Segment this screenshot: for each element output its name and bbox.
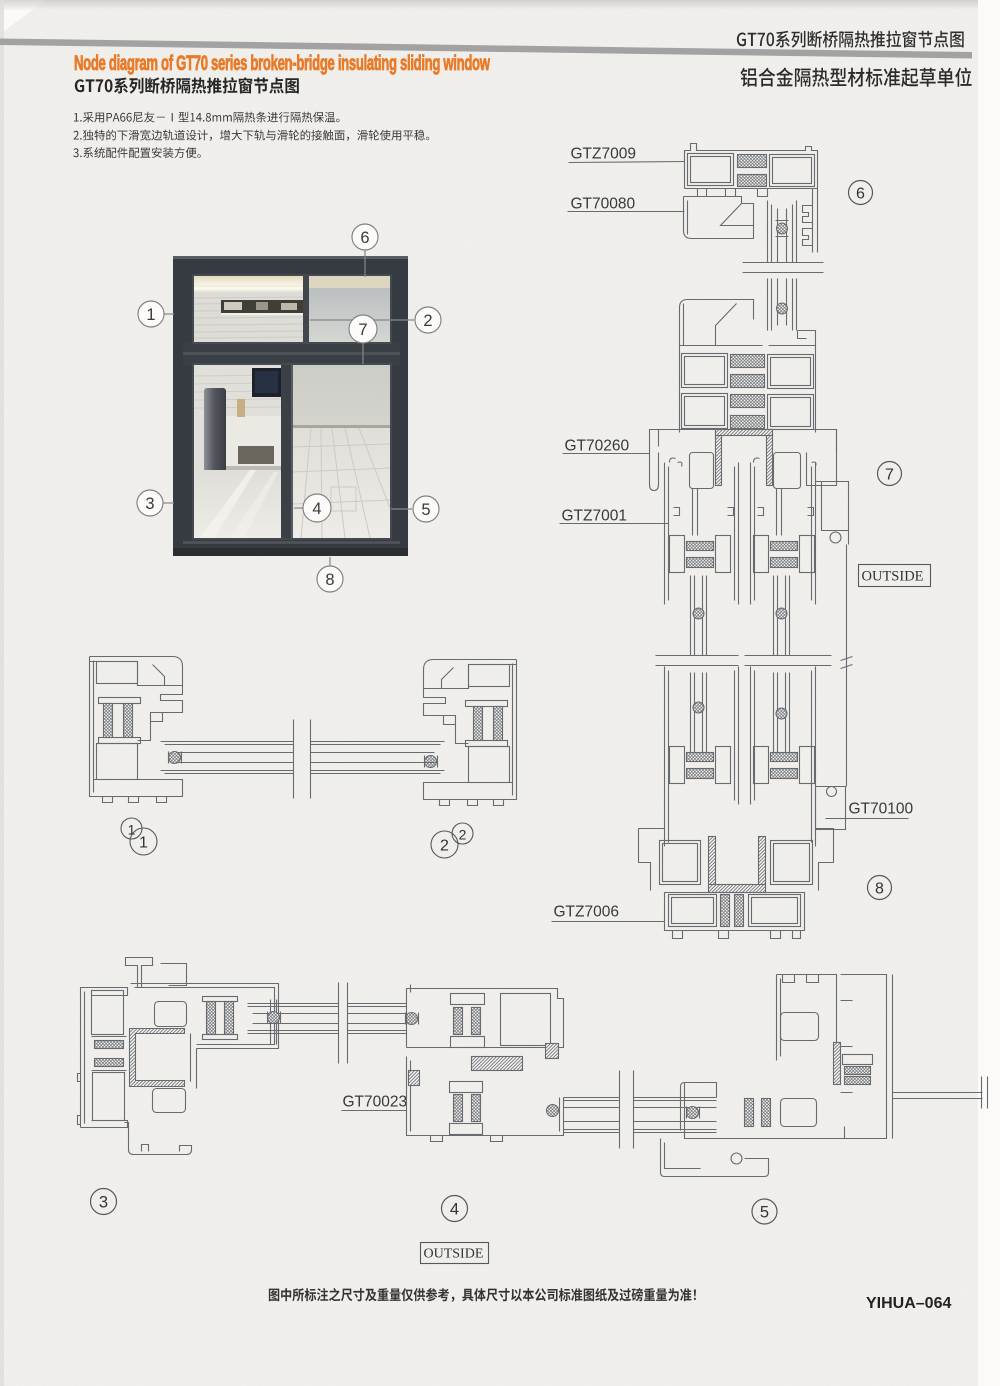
svg-text:2: 2 [423, 312, 432, 330]
svg-text:7: 7 [885, 467, 894, 484]
svg-text:7: 7 [358, 321, 367, 339]
svg-text:YIHUA–064: YIHUA–064 [866, 1295, 951, 1312]
svg-text:1: 1 [146, 306, 155, 324]
svg-text:6: 6 [360, 229, 369, 247]
svg-text:3: 3 [145, 495, 154, 513]
svg-text:OUTSIDE: OUTSIDE [424, 1247, 484, 1262]
svg-text:4: 4 [450, 1201, 459, 1219]
svg-text:Node diagram of GT70 series br: Node diagram of GT70 series broken-bridg… [74, 51, 490, 75]
svg-text:5: 5 [760, 1204, 769, 1222]
svg-text:GT70260: GT70260 [565, 438, 630, 455]
svg-text:8: 8 [875, 881, 884, 898]
svg-text:4: 4 [312, 500, 321, 518]
svg-text:GT70100: GT70100 [849, 801, 914, 818]
svg-text:GTZ7009: GTZ7009 [571, 146, 636, 163]
svg-text:2: 2 [440, 838, 449, 855]
svg-text:2: 2 [459, 827, 467, 843]
svg-text:OUTSIDE: OUTSIDE [862, 569, 924, 585]
svg-text:1: 1 [128, 822, 136, 838]
svg-text:6: 6 [856, 186, 865, 203]
svg-text:8: 8 [325, 571, 334, 589]
svg-text:GT70080: GT70080 [571, 196, 636, 213]
svg-text:1: 1 [139, 835, 148, 852]
svg-text:GTZ7001: GTZ7001 [562, 508, 627, 525]
svg-text:GTZ7006: GTZ7006 [554, 904, 619, 921]
svg-text:3: 3 [99, 1194, 108, 1212]
svg-text:GT70023: GT70023 [343, 1094, 408, 1111]
svg-text:5: 5 [421, 501, 430, 519]
